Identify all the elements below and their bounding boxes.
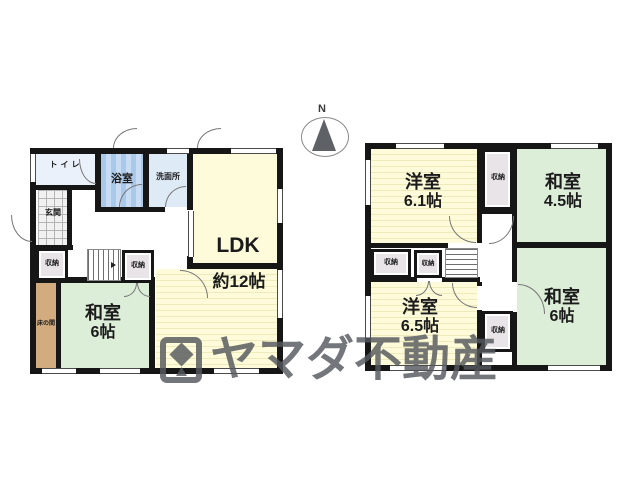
stairs-2f [445,248,478,278]
label-ldk: LDK [208,234,268,257]
window [551,143,598,149]
window [365,296,371,338]
window [30,154,36,182]
compass-arrow-icon [312,119,336,151]
wall [36,185,95,190]
label-washitsu-4-5-size: 4.5帖 [523,193,603,211]
label-washitsu-6-2f: 和室 6帖 [522,287,602,326]
label-western-6-1-size: 6.1帖 [383,193,463,211]
window [167,148,189,154]
label-storage-left: 収納 [38,260,66,268]
label-storage-b: 収納 [413,260,443,267]
window [277,270,283,318]
label-toilet: トイレ [40,161,92,170]
label-western-6-1-name: 洋室 [383,172,463,193]
door-arc-exterior-1 [113,128,137,148]
wall [606,143,612,371]
label-storage-top: 収納 [483,174,513,182]
window-slider [188,211,194,257]
watermark: ヤマダ不動産 [160,336,498,384]
wall [148,207,165,212]
wall [67,190,72,248]
label-washitsu-6-2f-size: 6帖 [522,308,602,326]
compass-north-label: N [318,103,326,115]
label-washitsu-6-2f-name: 和室 [522,287,602,308]
wall [365,243,448,248]
label-storage-right: 収納 [124,262,152,270]
label-washitsu-4-5-name: 和室 [523,172,603,193]
wall [190,263,283,269]
label-storage-a: 収納 [376,259,406,267]
door-arc-entrance [11,215,32,242]
room-entrance [38,190,67,247]
door-arc-hall-washitsu45 [489,216,514,244]
wall [477,282,482,286]
label-western-6-5-name: 洋室 [380,297,460,318]
label-entrance: 玄関 [39,209,67,218]
window [42,368,76,374]
watermark-brand-text: ヤマダ不動産 [210,336,498,384]
floor-plan-canvas: トイレ 浴室 洗面所 玄関 LDK 約12帖 収納 収納 床の間 和室 6帖 N [0,0,640,480]
wall [95,207,150,212]
window [396,143,444,149]
wall [512,248,517,282]
window [548,365,600,371]
window [277,189,283,223]
yamada-logo-icon [160,337,202,383]
label-western-6-1: 洋室 6.1帖 [383,172,463,211]
label-tokonoma: 床の間 [33,321,59,328]
label-ldk-size: 約12帖 [203,273,275,292]
label-washitsu-4-5: 和室 4.5帖 [523,172,603,211]
label-washitsu-1f: 和室 6帖 [63,303,143,342]
label-western-6-5: 洋室 6.5帖 [380,297,460,336]
door-arc-exterior-2 [197,128,221,148]
label-bath: 浴室 [103,173,141,185]
window [100,368,140,374]
label-washroom: 洗面所 [149,173,187,182]
logo-diamond-icon [169,342,193,366]
logo-foot-icon [176,367,187,376]
window [365,160,371,205]
label-washitsu-1f-size: 6帖 [63,324,143,342]
label-washitsu-1f-name: 和室 [63,303,143,324]
wall [512,242,612,248]
window [231,148,276,154]
stairs-arrow-icon [111,262,116,268]
wall [187,148,193,210]
